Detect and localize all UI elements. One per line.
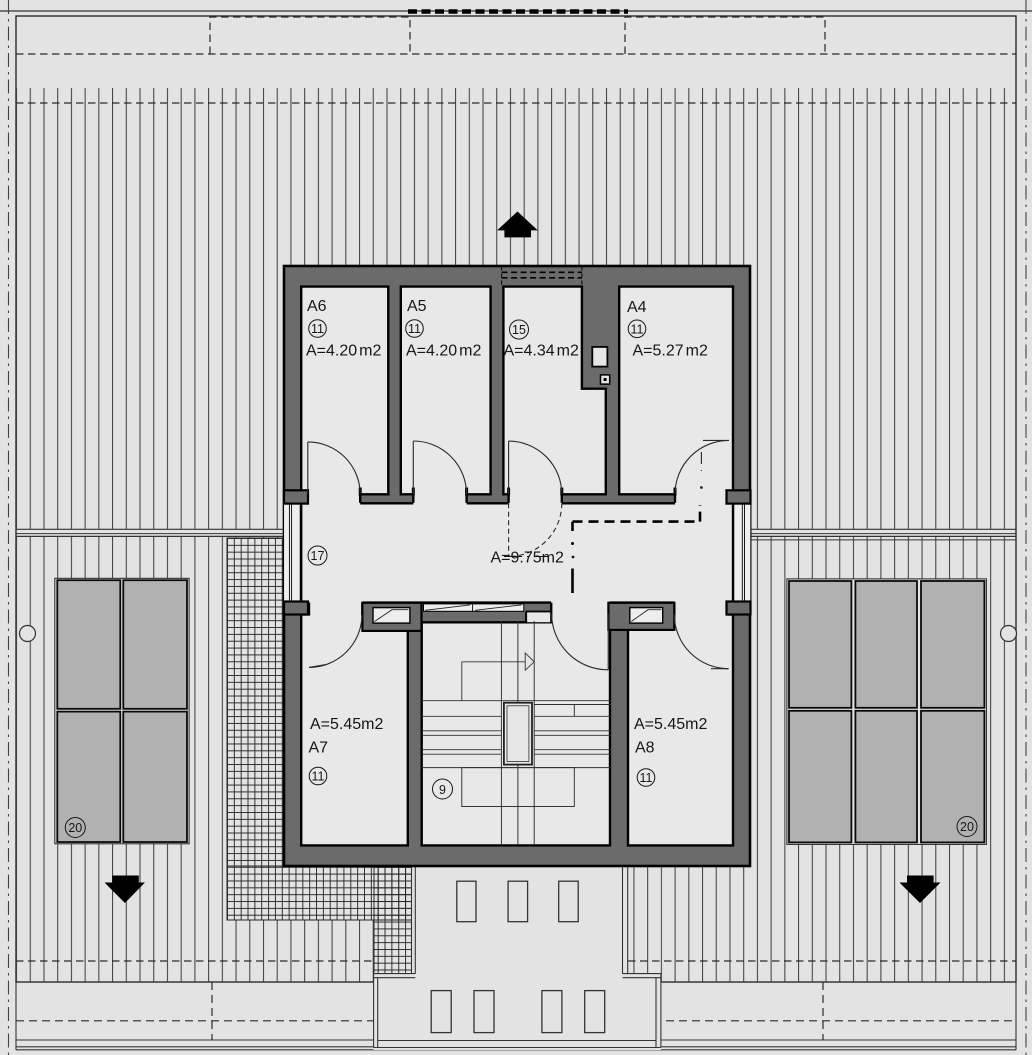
svg-text:A8: A8: [635, 740, 655, 757]
svg-text:A=4.20m2: A=4.20m2: [406, 343, 481, 360]
svg-text:11: 11: [640, 771, 653, 785]
svg-text:A=9.75m2: A=9.75m2: [491, 550, 564, 567]
svg-text:A=5.45m2: A=5.45m2: [310, 716, 383, 733]
svg-text:11: 11: [631, 322, 644, 336]
svg-text:9: 9: [439, 783, 446, 797]
svg-text:11: 11: [312, 770, 325, 784]
svg-text:A=4.34m2: A=4.34m2: [504, 343, 579, 360]
svg-text:A=5.27m2: A=5.27m2: [633, 343, 708, 360]
svg-text:17: 17: [311, 549, 325, 563]
svg-text:20: 20: [68, 821, 82, 835]
svg-text:11: 11: [311, 322, 324, 336]
svg-text:A=5.45m2: A=5.45m2: [634, 716, 707, 733]
svg-text:A=4.20m2: A=4.20m2: [306, 343, 381, 360]
svg-text:11: 11: [408, 322, 421, 336]
svg-text:A4: A4: [627, 299, 647, 316]
svg-text:A6: A6: [307, 298, 327, 315]
svg-text:20: 20: [960, 820, 974, 834]
svg-text:A5: A5: [407, 298, 427, 315]
svg-text:15: 15: [512, 323, 526, 337]
svg-text:A7: A7: [309, 740, 329, 757]
